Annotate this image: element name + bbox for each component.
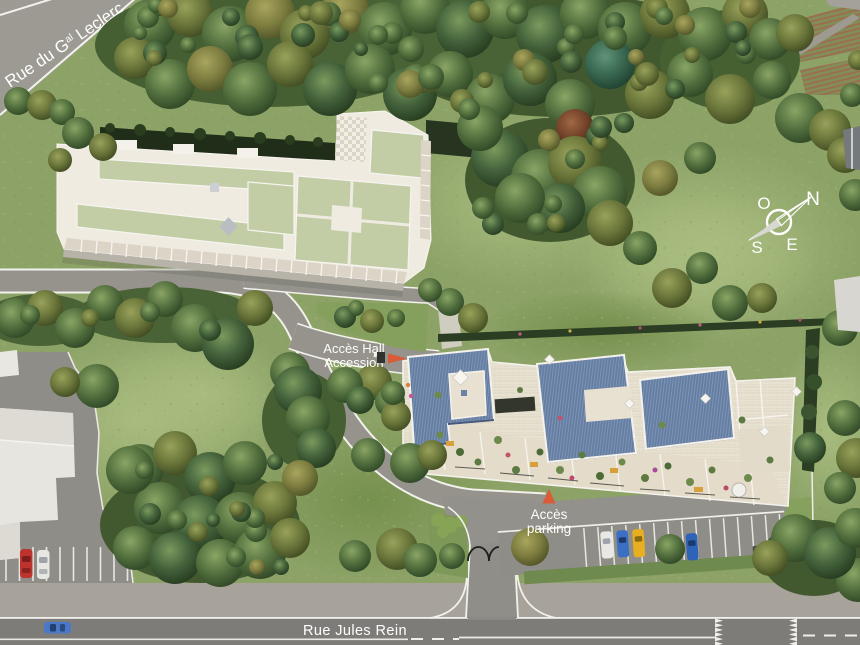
svg-text:S: S (751, 238, 762, 257)
svg-text:parking: parking (527, 521, 571, 536)
svg-text:Accès: Accès (531, 507, 568, 522)
svg-text:N: N (806, 189, 820, 210)
svg-text:Accession: Accession (324, 355, 383, 370)
svg-text:Rue Jules Rein: Rue Jules Rein (303, 623, 407, 639)
svg-text:O: O (757, 194, 770, 213)
svg-text:E: E (786, 235, 797, 254)
svg-text:Accès Hall: Accès Hall (323, 341, 385, 356)
